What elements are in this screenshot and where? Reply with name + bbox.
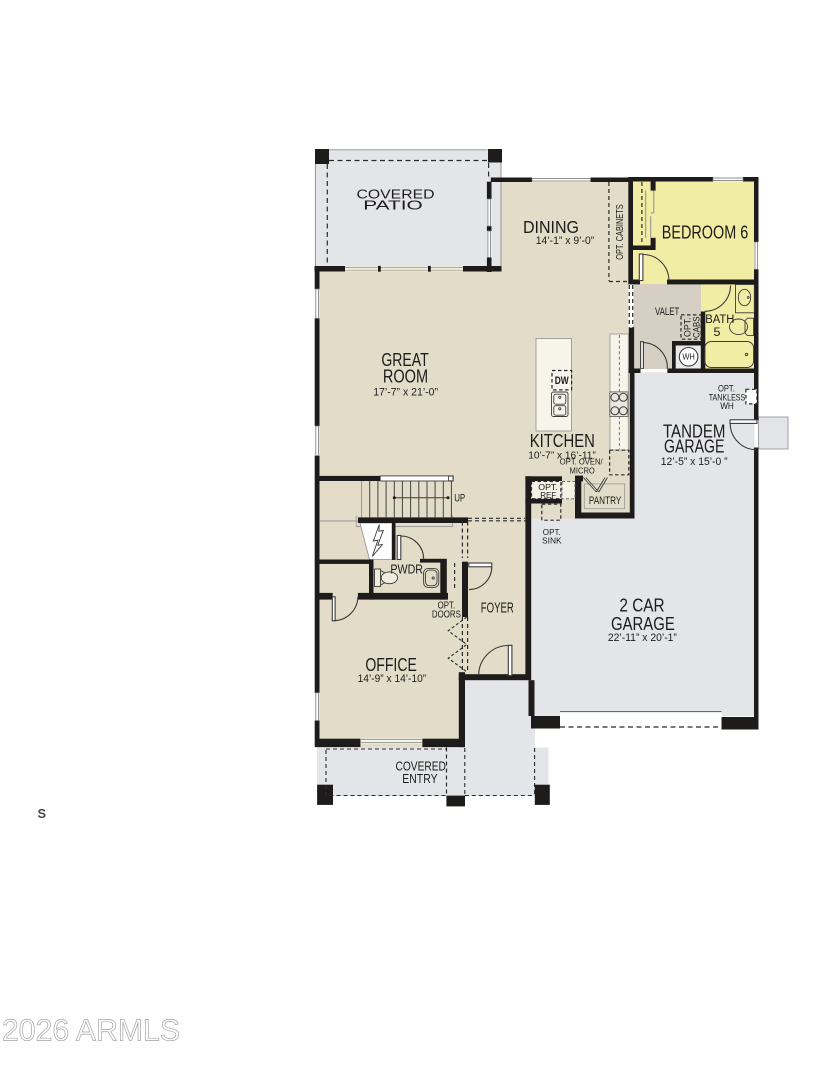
- svg-text:REF: REF: [540, 490, 556, 500]
- svg-text:GARAGE: GARAGE: [611, 613, 675, 634]
- svg-text:14’-1” x 9’-0”: 14’-1” x 9’-0”: [536, 235, 595, 247]
- svg-text:S: S: [38, 806, 47, 821]
- svg-text:FOYER: FOYER: [481, 601, 514, 617]
- svg-text:VALET: VALET: [655, 306, 680, 318]
- svg-text:12’-5” x 15’-0 ”: 12’-5” x 15’-0 ”: [661, 456, 728, 468]
- svg-text:WH: WH: [682, 353, 695, 362]
- svg-text:ROOM: ROOM: [383, 366, 428, 387]
- svg-text:GARAGE: GARAGE: [664, 436, 725, 457]
- svg-text:ENTRY: ENTRY: [402, 771, 438, 786]
- svg-text:DOORS: DOORS: [432, 609, 461, 620]
- svg-text:5: 5: [714, 325, 721, 339]
- svg-text:KITCHEN: KITCHEN: [530, 431, 595, 451]
- svg-text:PANTRY: PANTRY: [589, 495, 621, 507]
- svg-text:14’-9” x 14’-10”: 14’-9” x 14’-10”: [358, 673, 427, 685]
- svg-text:22’-11” x 20’-1”: 22’-11” x 20’-1”: [608, 632, 677, 644]
- svg-text:2026 ARMLS: 2026 ARMLS: [2, 1014, 180, 1048]
- svg-text:SINK: SINK: [542, 536, 562, 546]
- svg-text:WH: WH: [720, 401, 734, 412]
- svg-text:UP: UP: [454, 493, 465, 505]
- svg-text:OFFICE: OFFICE: [365, 654, 417, 675]
- svg-text:17’-7” x 21’-0”: 17’-7” x 21’-0”: [373, 387, 438, 399]
- svg-text:DW: DW: [555, 375, 570, 387]
- svg-text:PWDR: PWDR: [390, 563, 423, 577]
- svg-text:BATH: BATH: [705, 312, 734, 326]
- svg-text:BEDROOM 6: BEDROOM 6: [662, 221, 749, 242]
- svg-text:CABS: CABS: [692, 317, 702, 339]
- svg-text:DINING: DINING: [523, 217, 579, 237]
- svg-text:PATIO: PATIO: [363, 199, 423, 213]
- svg-text:MICRO: MICRO: [570, 465, 596, 475]
- svg-text:OPT. CABINETS: OPT. CABINETS: [615, 204, 626, 260]
